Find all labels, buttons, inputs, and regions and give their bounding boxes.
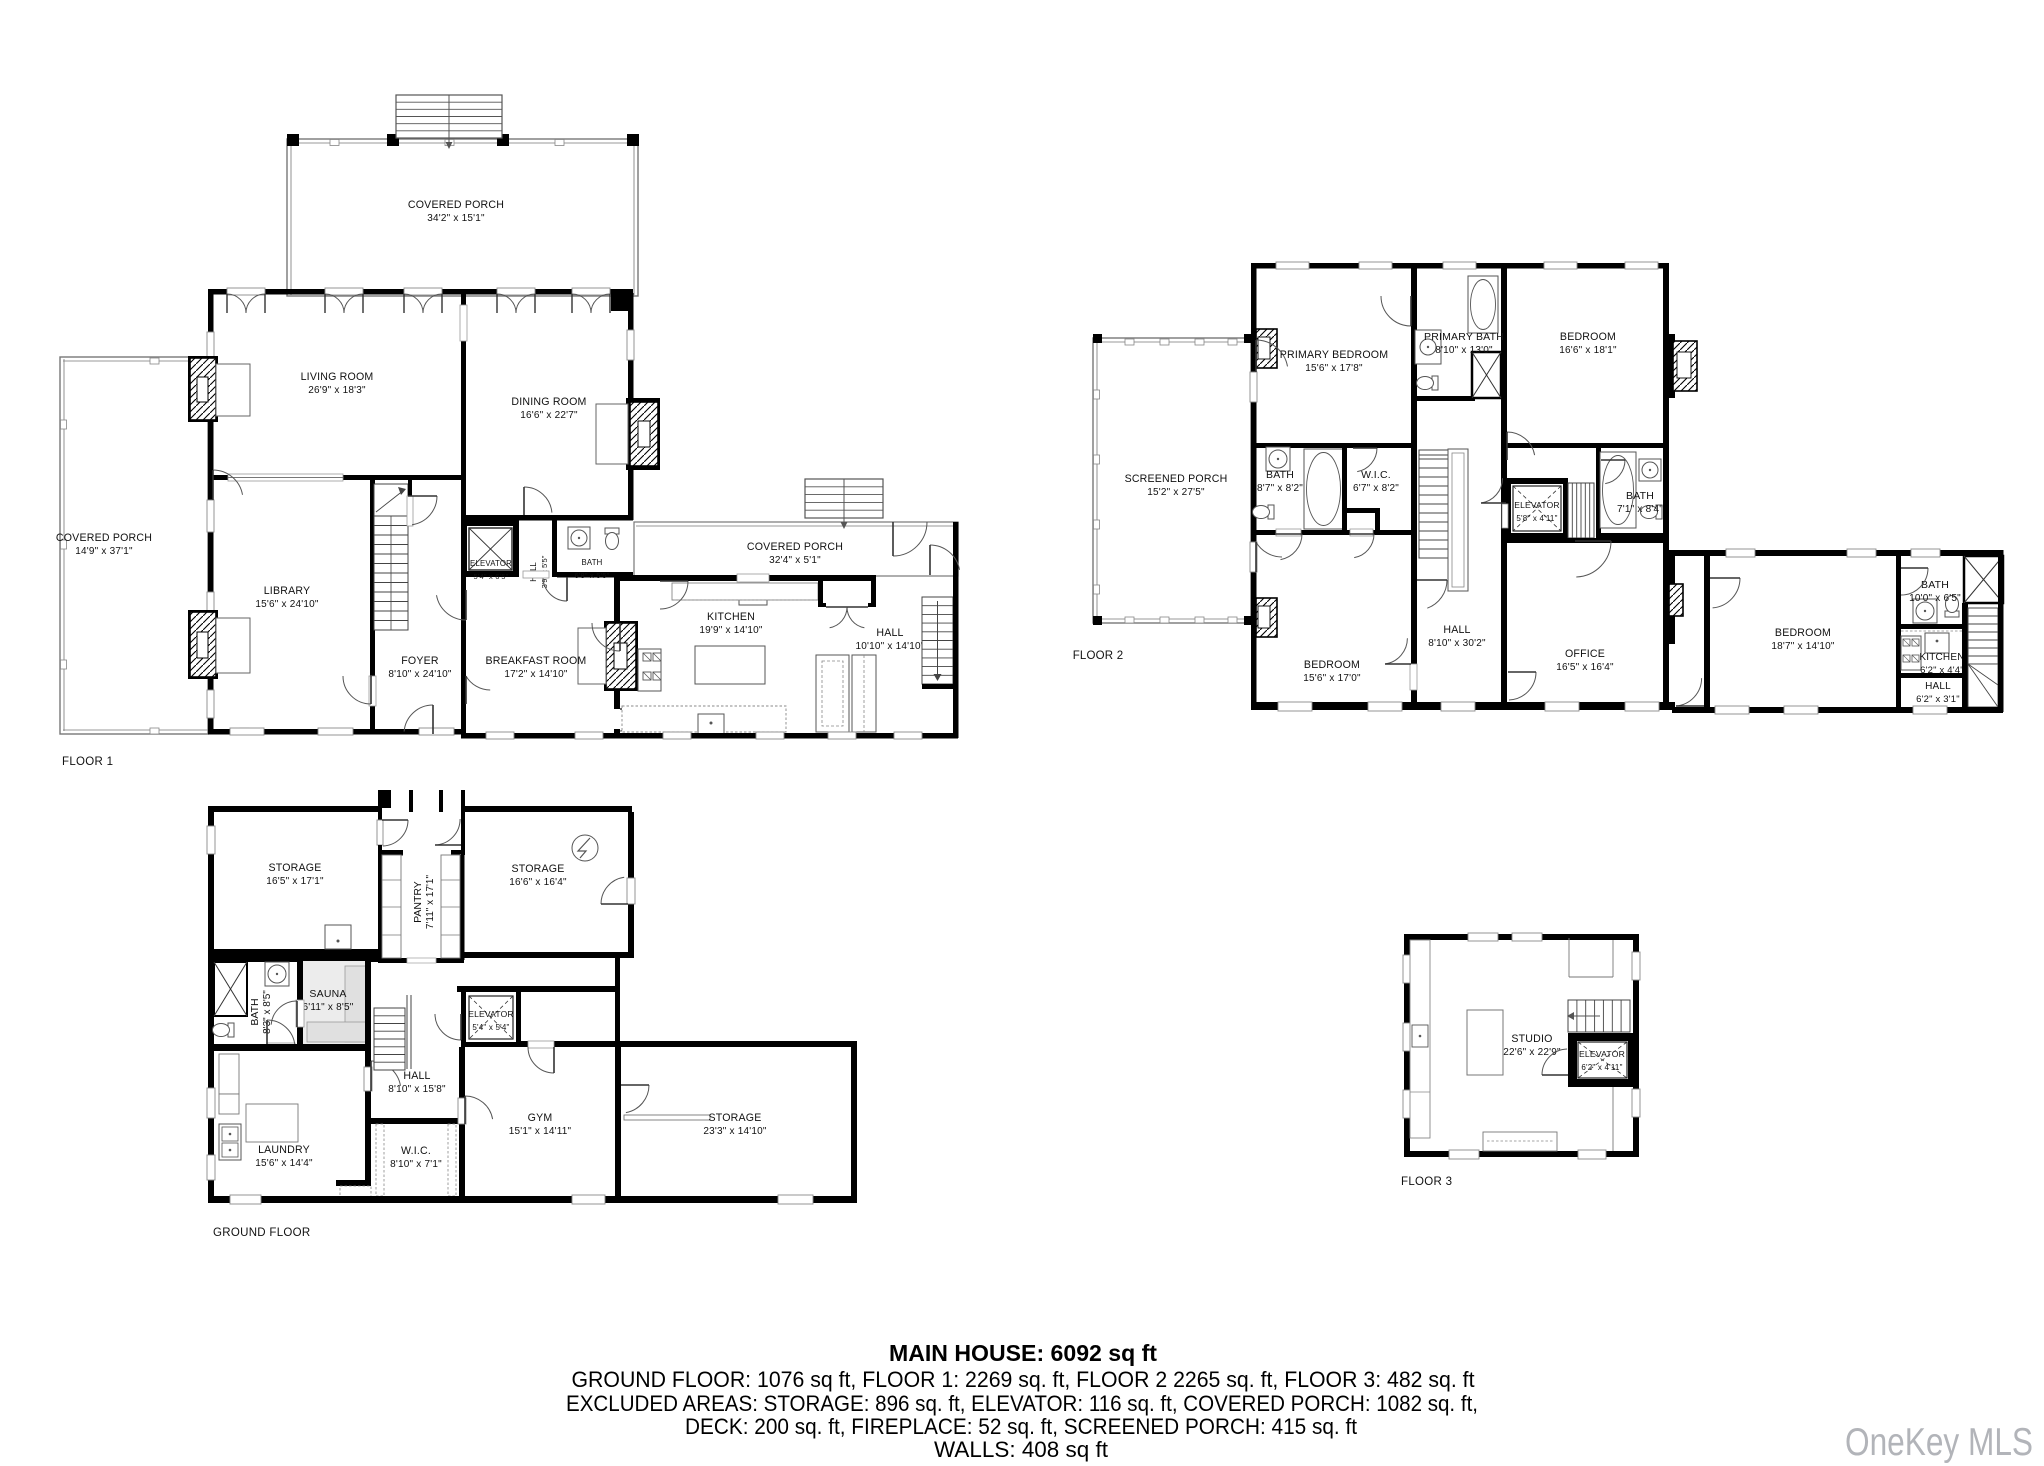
svg-text:8'10" x 15'8": 8'10" x 15'8" xyxy=(388,1084,446,1095)
svg-text:6'2" x 4'11": 6'2" x 4'11" xyxy=(1581,1063,1622,1072)
svg-text:BEDROOM: BEDROOM xyxy=(1560,331,1616,343)
svg-text:6'11" x 8'5": 6'11" x 8'5" xyxy=(303,1002,354,1013)
svg-text:ELEVATOR: ELEVATOR xyxy=(1579,1049,1625,1059)
svg-text:26'9" x 18'3": 26'9" x 18'3" xyxy=(308,385,366,396)
svg-text:BATH: BATH xyxy=(1626,490,1654,502)
svg-text:10'10" x 14'10": 10'10" x 14'10" xyxy=(856,641,925,652)
svg-text:16'6" x 22'7": 16'6" x 22'7" xyxy=(520,410,578,421)
svg-text:14'9" x 37'1": 14'9" x 37'1" xyxy=(75,546,133,557)
svg-text:34'2" x 15'1": 34'2" x 15'1" xyxy=(427,213,485,224)
svg-text:15'6" x 17'8": 15'6" x 17'8" xyxy=(1305,363,1363,374)
svg-text:ELEVATOR: ELEVATOR xyxy=(1514,500,1560,510)
svg-text:SAUNA: SAUNA xyxy=(309,988,346,1000)
svg-text:STUDIO: STUDIO xyxy=(1511,1033,1552,1045)
svg-text:COVERED PORCH: COVERED PORCH xyxy=(747,541,843,553)
svg-text:8'10" x 24'10": 8'10" x 24'10" xyxy=(388,669,451,680)
svg-text:LIVING ROOM: LIVING ROOM xyxy=(301,371,374,383)
svg-text:16'6" x 16'4": 16'6" x 16'4" xyxy=(509,877,567,888)
svg-text:OneKey MLS: OneKey MLS xyxy=(1845,1421,2033,1464)
svg-text:HALL: HALL xyxy=(1925,681,1951,692)
svg-text:23'3" x 14'10": 23'3" x 14'10" xyxy=(703,1126,766,1137)
svg-text:8'10" x 13'0": 8'10" x 13'0" xyxy=(1435,345,1493,356)
svg-text:MAIN HOUSE: 6092 sq ft: MAIN HOUSE: 6092 sq ft xyxy=(889,1340,1157,1366)
svg-text:15'6" x 14'4": 15'6" x 14'4" xyxy=(255,1158,313,1169)
svg-text:FOYER: FOYER xyxy=(401,655,439,667)
svg-text:LIBRARY: LIBRARY xyxy=(264,585,311,597)
svg-text:6'2" x 4'4": 6'2" x 4'4" xyxy=(1920,665,1964,676)
svg-text:16'5" x 17'1": 16'5" x 17'1" xyxy=(266,876,324,887)
svg-text:19'9" x 14'10": 19'9" x 14'10" xyxy=(699,625,762,636)
svg-text:STORAGE: STORAGE xyxy=(268,862,321,874)
svg-text:BATH: BATH xyxy=(1266,469,1294,481)
svg-text:FLOOR 1: FLOOR 1 xyxy=(62,756,113,768)
svg-text:HALL: HALL xyxy=(1443,624,1470,636)
svg-text:BATH: BATH xyxy=(581,558,602,567)
svg-text:BEDROOM: BEDROOM xyxy=(1304,659,1360,671)
svg-text:32'4" x 5'1": 32'4" x 5'1" xyxy=(769,555,821,566)
svg-text:KITCHEN: KITCHEN xyxy=(1919,652,1964,663)
svg-text:8'10" x 7'1": 8'10" x 7'1" xyxy=(390,1159,442,1170)
svg-text:ELEVATOR: ELEVATOR xyxy=(470,559,512,568)
svg-text:W.I.C.: W.I.C. xyxy=(401,1145,431,1157)
svg-text:PRIMARY BEDROOM: PRIMARY BEDROOM xyxy=(1280,349,1389,361)
svg-text:LAUNDRY: LAUNDRY xyxy=(258,1144,310,1156)
svg-text:EXCLUDED AREAS: STORAGE: 896 s: EXCLUDED AREAS: STORAGE: 896 sq. ft, ELE… xyxy=(566,1391,1478,1416)
svg-text:5'4" x 6'5": 5'4" x 6'5" xyxy=(474,572,509,581)
svg-text:5'8" x 4'11": 5'8" x 4'11" xyxy=(1516,514,1557,523)
svg-text:COVERED PORCH: COVERED PORCH xyxy=(408,199,504,211)
svg-text:STORAGE: STORAGE xyxy=(708,1112,761,1124)
svg-text:15'1" x 14'11": 15'1" x 14'11" xyxy=(509,1126,572,1137)
svg-text:FLOOR 2: FLOOR 2 xyxy=(1073,650,1124,662)
svg-text:15'6" x 17'0": 15'6" x 17'0" xyxy=(1303,673,1361,684)
svg-text:7'11" x 17'1": 7'11" x 17'1" xyxy=(425,875,436,930)
svg-text:6'7" x 8'2": 6'7" x 8'2" xyxy=(1353,483,1399,494)
svg-text:18'7" x 14'10": 18'7" x 14'10" xyxy=(1771,641,1834,652)
svg-text:DECK: 200 sq. ft, FIREPLACE: 5: DECK: 200 sq. ft, FIREPLACE: 52 sq. ft, … xyxy=(685,1414,1357,1439)
svg-text:BREAKFAST ROOM: BREAKFAST ROOM xyxy=(486,655,587,667)
svg-text:FLOOR 3: FLOOR 3 xyxy=(1401,1176,1452,1188)
svg-text:17'2" x 14'10": 17'2" x 14'10" xyxy=(504,669,567,680)
svg-text:15'2" x 27'5": 15'2" x 27'5" xyxy=(1147,487,1205,498)
svg-text:OFFICE: OFFICE xyxy=(1565,648,1605,660)
svg-text:GROUND FLOOR: GROUND FLOOR xyxy=(213,1227,311,1239)
svg-text:8'10" x 30'2": 8'10" x 30'2" xyxy=(1428,638,1486,649)
svg-text:GROUND FLOOR: 1076 sq ft, FLOO: GROUND FLOOR: 1076 sq ft, FLOOR 1: 2269 … xyxy=(572,1367,1475,1392)
svg-text:STORAGE: STORAGE xyxy=(511,863,564,875)
svg-text:W.I.C.: W.I.C. xyxy=(1361,469,1391,481)
svg-text:7'1" x 8'4": 7'1" x 8'4" xyxy=(1617,504,1663,515)
svg-text:PANTRY: PANTRY xyxy=(412,881,424,923)
svg-text:ELEVATOR: ELEVATOR xyxy=(468,1009,514,1019)
svg-text:BATH: BATH xyxy=(249,998,261,1025)
svg-text:8'7" x 8'2": 8'7" x 8'2" xyxy=(1257,483,1303,494)
svg-text:22'6" x 22'9": 22'6" x 22'9" xyxy=(1503,1047,1561,1058)
svg-text:WALLS: 408 sq ft: WALLS: 408 sq ft xyxy=(934,1437,1108,1462)
svg-text:HALL: HALL xyxy=(876,627,903,639)
svg-text:COVERED PORCH: COVERED PORCH xyxy=(56,532,152,544)
svg-text:HALL: HALL xyxy=(403,1070,430,1082)
svg-text:15'6" x 24'10": 15'6" x 24'10" xyxy=(255,599,318,610)
svg-text:6'8" x 5'5": 6'8" x 5'5" xyxy=(575,571,610,580)
svg-text:DINING ROOM: DINING ROOM xyxy=(511,396,586,408)
svg-text:KITCHEN: KITCHEN xyxy=(707,611,755,623)
svg-text:PRIMARY BATH: PRIMARY BATH xyxy=(1424,331,1504,343)
svg-text:GYM: GYM xyxy=(528,1112,553,1124)
svg-text:SCREENED PORCH: SCREENED PORCH xyxy=(1125,473,1228,485)
svg-text:6'2" x 3'1": 6'2" x 3'1" xyxy=(1916,694,1960,705)
svg-text:10'0" x 6'5": 10'0" x 6'5" xyxy=(1909,593,1961,604)
svg-text:BEDROOM: BEDROOM xyxy=(1775,627,1831,639)
svg-text:16'5" x 16'4": 16'5" x 16'4" xyxy=(1556,662,1614,673)
svg-text:16'6" x 18'1": 16'6" x 18'1" xyxy=(1559,345,1617,356)
svg-text:5'4" x 5'4": 5'4" x 5'4" xyxy=(472,1023,509,1032)
